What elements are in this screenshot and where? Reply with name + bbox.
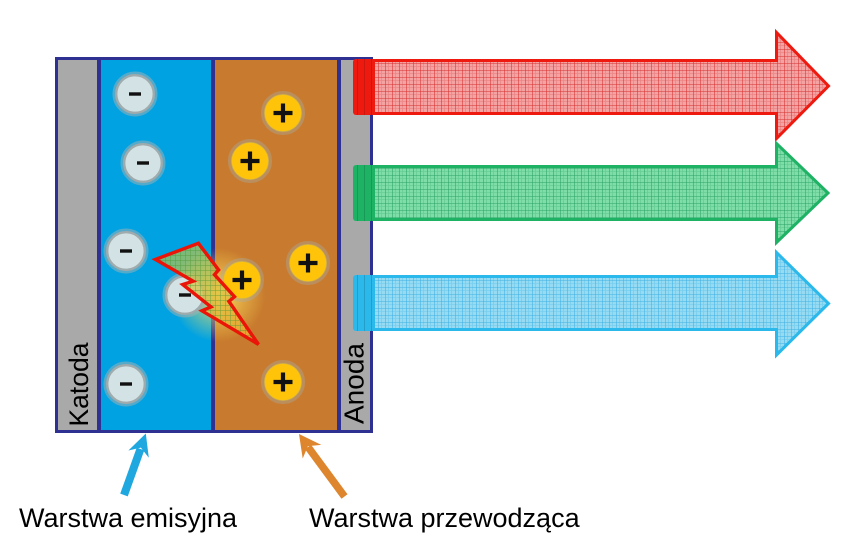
svg-text:Katoda: Katoda <box>64 342 94 426</box>
svg-text:Anoda: Anoda <box>339 343 370 424</box>
svg-text:Warstwa przewodząca: Warstwa przewodząca <box>309 503 581 533</box>
svg-text:Warstwa emisyjna: Warstwa emisyjna <box>19 503 238 533</box>
